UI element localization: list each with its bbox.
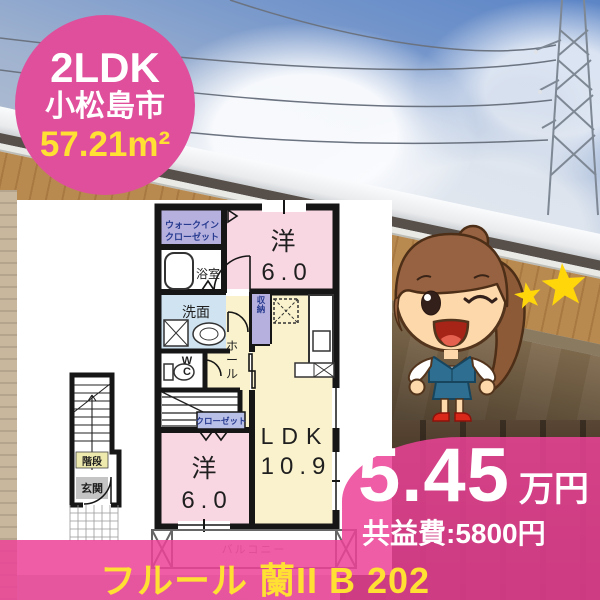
eye-highlight xyxy=(424,294,431,301)
agent-mascot-icon xyxy=(394,226,524,421)
property-badge: 2LDK 小松島市 57.21m² xyxy=(15,15,195,195)
common-fee: 共益費:5800円 xyxy=(362,512,546,552)
rent-price: 5.45 万円 xyxy=(358,438,589,514)
hand-left xyxy=(410,380,425,395)
neck xyxy=(444,350,458,359)
layout-type: 2LDK xyxy=(50,46,160,91)
property-name: フルール 蘭II B 202 xyxy=(0,552,530,600)
rent-unit: 万円 xyxy=(519,461,589,512)
eye-open xyxy=(422,291,441,315)
rent-amount: 5.45 xyxy=(358,438,510,514)
floor-area: 57.21m² xyxy=(40,125,170,164)
shoe-right xyxy=(455,413,471,421)
shoe-left xyxy=(433,413,449,421)
listing-image: ウォークイン クローゼット 浴室 洗面 WC 収納 ホール 洋 6.0 LDK … xyxy=(0,0,600,600)
star-icon-large xyxy=(542,263,586,306)
city-name: 小松島市 xyxy=(45,90,165,125)
hand-right xyxy=(480,380,495,395)
skirt xyxy=(433,382,471,399)
